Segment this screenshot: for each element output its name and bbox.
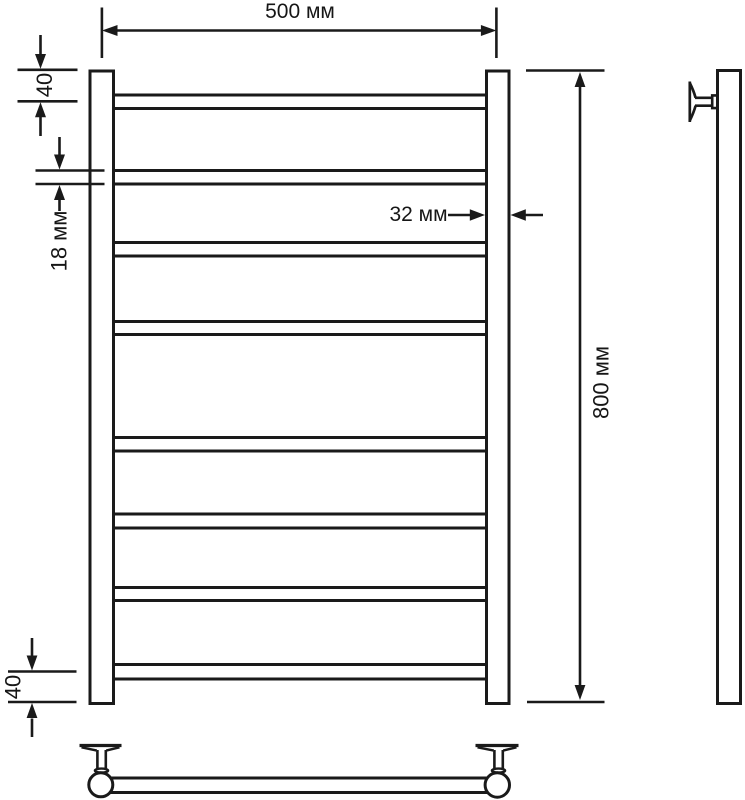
svg-text:40: 40	[32, 73, 57, 97]
svg-text:18 мм: 18 мм	[47, 211, 72, 272]
svg-text:32 мм: 32 мм	[389, 203, 447, 226]
svg-text:800 мм: 800 мм	[589, 346, 614, 419]
svg-text:40: 40	[1, 675, 26, 699]
svg-text:500 мм: 500 мм	[265, 0, 335, 23]
